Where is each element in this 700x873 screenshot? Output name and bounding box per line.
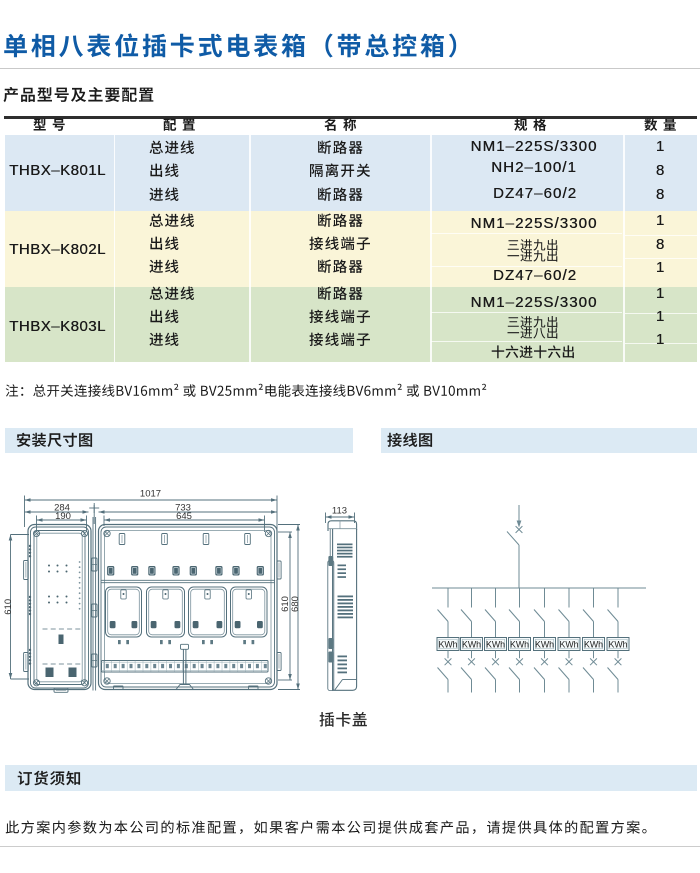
svg-text:1017: 1017 — [140, 489, 161, 500]
svg-text:KWh: KWh — [584, 640, 603, 650]
svg-text:KWh: KWh — [438, 640, 457, 650]
svg-text:KWh: KWh — [510, 640, 529, 650]
svg-text:680: 680 — [290, 596, 301, 612]
svg-text:190: 190 — [55, 511, 71, 522]
svg-text:113: 113 — [332, 505, 347, 516]
svg-text:610: 610 — [3, 599, 14, 615]
svg-text:KWh: KWh — [462, 640, 481, 650]
svg-text:KWh: KWh — [608, 640, 627, 650]
svg-text:KWh: KWh — [486, 640, 505, 650]
svg-text:645: 645 — [176, 511, 192, 522]
svg-text:KWh: KWh — [535, 640, 554, 650]
svg-text:KWh: KWh — [559, 640, 578, 650]
